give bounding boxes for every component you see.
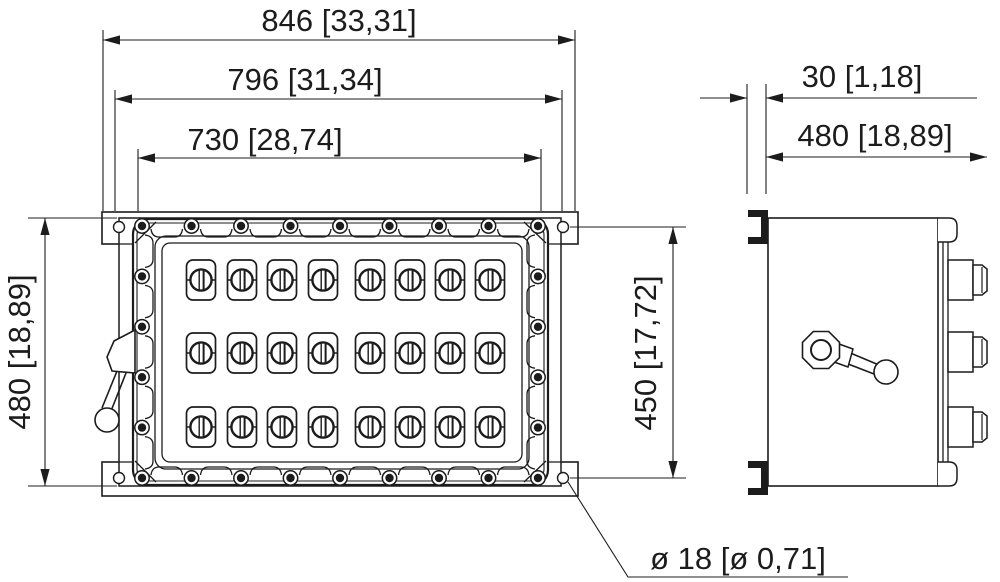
side-lid-tab-bottom (938, 462, 957, 486)
handle-knob-side (874, 360, 898, 384)
dim-overall-depth: 480 [18,89] (766, 118, 987, 162)
side-lid-tab-top (938, 218, 957, 242)
dim-cover-width-label: 730 [28,74] (187, 122, 342, 157)
dim-hole-spacing: 450 [17,72] (570, 227, 686, 478)
dim-overall-width: 846 [33,31] (103, 3, 575, 211)
cable-gland (948, 260, 987, 300)
mounting-hole (114, 473, 125, 484)
leader-hole-diameter: ø 18 [ø 0,71] (568, 482, 848, 577)
handle-hub (107, 330, 135, 373)
side-body (768, 218, 938, 486)
dim-overall-width-label: 846 [33,31] (261, 3, 416, 38)
hole-diameter-label: ø 18 [ø 0,71] (650, 541, 826, 576)
cable-gland (948, 407, 987, 447)
technical-drawing-page: 846 [33,31] 796 [31,34] 730 [28,74] 480 … (0, 0, 1000, 582)
flange-clamp-top (748, 210, 768, 244)
dim-flange-thickness-label: 30 [1,18] (802, 59, 923, 94)
flange-clamp-bottom (748, 461, 768, 495)
mounting-hole (558, 473, 569, 484)
dim-enclosure-height: 480 [18,89] (2, 218, 117, 486)
dim-enclosure-height-label: 480 [18,89] (2, 274, 37, 429)
dim-overall-depth-label: 480 [18,89] (797, 118, 952, 153)
dim-cover-width: 730 [28,74] (138, 122, 541, 211)
side-view (748, 210, 987, 495)
front-view (95, 212, 578, 496)
cable-gland (948, 332, 987, 372)
dim-hole-spacing-label: 450 [17,72] (628, 275, 663, 430)
handle-knob (95, 408, 119, 432)
dim-enclosure-width-label: 796 [31,34] (227, 62, 382, 97)
cable-glands (948, 260, 987, 447)
mounting-hole (558, 222, 569, 233)
technical-drawing-canvas: 846 [33,31] 796 [31,34] 730 [28,74] 480 … (0, 0, 1000, 582)
handle-shaft (811, 340, 831, 360)
mounting-hole (114, 222, 125, 233)
